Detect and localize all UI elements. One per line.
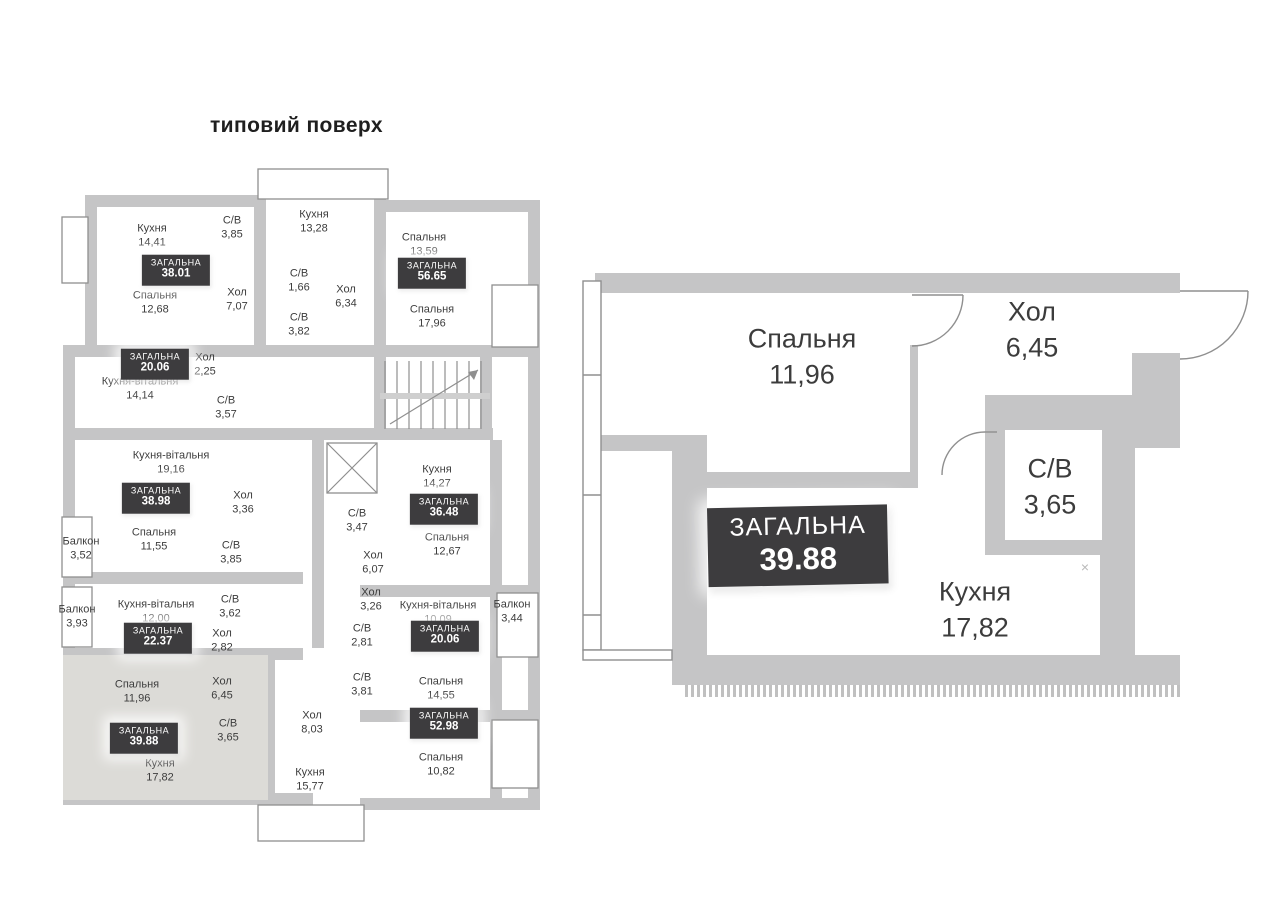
room-area: 2,82	[211, 641, 232, 655]
room-name: Хол	[211, 675, 232, 689]
room-label: Хол 3,36	[232, 489, 253, 518]
room-area: 3,82	[288, 325, 309, 339]
wall	[85, 195, 97, 345]
room-area: 3,52	[63, 549, 100, 563]
balcony-outline	[583, 281, 601, 650]
room-area: 2,25	[194, 365, 215, 379]
room-name: Кухня-вітальня	[400, 599, 477, 613]
room-label: Балкон 3,52	[63, 535, 100, 564]
room-label: Хол 2,25	[194, 351, 215, 380]
room-label: С/В 3,82	[288, 311, 309, 340]
total-badge-value: 38.01	[151, 268, 201, 281]
room-area: 3,65	[1024, 487, 1077, 523]
room-label: Хол 6,45	[211, 675, 232, 704]
room-area: 3,26	[360, 600, 381, 614]
total-badge-value: 38.98	[131, 496, 181, 509]
room-area: 1,66	[288, 281, 309, 295]
wall	[374, 357, 386, 428]
total-badge-label: ЗАГАЛЬНА	[130, 352, 180, 362]
room-name: Спальня	[410, 303, 454, 317]
room-area: 14,55	[419, 689, 463, 703]
total-badge-value: 20.06	[420, 634, 470, 647]
wall	[672, 472, 918, 488]
room-area: 12,68	[133, 303, 177, 317]
room-name: С/В	[351, 622, 372, 636]
room-label: Спальня 14,55	[419, 675, 463, 704]
room-name: Спальня	[425, 531, 469, 545]
room-area: 14,41	[137, 236, 166, 250]
room-area: 11,96	[115, 692, 159, 706]
room-label: С/В 2,81	[351, 622, 372, 651]
room-name: Кухня	[939, 574, 1011, 610]
room-name: Хол	[362, 549, 383, 563]
wall	[1132, 353, 1180, 448]
room-name: Кухня	[145, 757, 174, 771]
total-badge-label: ЗАГАЛЬНА	[151, 258, 201, 268]
room-name: Хол	[232, 489, 253, 503]
total-badge-value: 52.98	[419, 721, 469, 734]
room-label: Кухня 15,77	[295, 766, 324, 795]
room-area: 6,34	[335, 297, 356, 311]
balcony-outline	[258, 169, 388, 199]
wall	[586, 435, 672, 451]
x-marker: ×	[1081, 559, 1089, 575]
room-label: Кухня-вітальня 19,16	[133, 449, 210, 478]
room-name: Балкон	[63, 535, 100, 549]
room-label: Балкон 3,44	[494, 598, 531, 627]
room-label: Спальня 11,55	[132, 526, 176, 555]
wall	[685, 655, 1180, 685]
total-badge-value: 22.37	[133, 636, 183, 649]
room-area: 11,55	[132, 540, 176, 554]
room-area: 3,36	[232, 503, 253, 517]
room-name: С/В	[220, 539, 241, 553]
room-name: Спальня	[419, 675, 463, 689]
room-area: 6,45	[211, 689, 232, 703]
room-name: С/В	[215, 394, 236, 408]
total-badge-label: ЗАГАЛЬНА	[419, 497, 469, 507]
room-name: Хол	[1006, 294, 1059, 330]
room-name: Спальня	[132, 526, 176, 540]
wall	[254, 195, 266, 345]
room-label: Спальня 11,96	[115, 678, 159, 707]
room-name: Балкон	[59, 603, 96, 617]
entry-canopy-outline	[258, 805, 364, 841]
room-name: Кухня	[295, 766, 324, 780]
door-arc	[912, 295, 963, 346]
room-area: 10,82	[419, 765, 463, 779]
total-badge-value: 36.48	[419, 507, 469, 520]
total-badge: ЗАГАЛЬНА 22.37	[124, 623, 192, 654]
room-name: Балкон	[494, 598, 531, 612]
room-label: С/В 3,47	[346, 507, 367, 536]
wall	[910, 345, 918, 480]
room-label: Кухня 13,28	[299, 208, 328, 237]
wall	[85, 195, 262, 207]
room-label: Кухня 14,27	[422, 463, 451, 492]
room-label: Кухня 14,41	[137, 222, 166, 251]
total-badge: ЗАГАЛЬНА 52.98	[410, 708, 478, 739]
elevator-outline	[327, 443, 377, 493]
room-area: 8,03	[301, 723, 322, 737]
total-badge-label: ЗАГАЛЬНА	[133, 626, 183, 636]
total-badge-value: 56.65	[407, 271, 457, 284]
total-badge: ЗАГАЛЬНА 20.06	[121, 349, 189, 380]
room-name: С/В	[288, 267, 309, 281]
room-name: Хол	[211, 627, 232, 641]
room-label: Спальня 12,67	[425, 531, 469, 560]
room-name: Кухня-вітальня	[133, 449, 210, 463]
wall	[360, 798, 540, 810]
room-name: С/В	[221, 214, 242, 228]
room-label: С/В 1,66	[288, 267, 309, 296]
room-area: 3,57	[215, 408, 236, 422]
balcony-outline	[583, 650, 672, 660]
room-area: 3,85	[221, 228, 242, 242]
wall	[380, 200, 540, 212]
room-label: Спальня 13,59	[402, 231, 446, 260]
wall	[528, 200, 540, 350]
room-name: Спальня	[748, 321, 857, 357]
room-area: 3,62	[219, 607, 240, 621]
total-badge: ЗАГАЛЬНА 38.01	[142, 255, 210, 286]
room-name: С/В	[1024, 451, 1077, 487]
room-label: Спальня 11,96	[748, 321, 857, 394]
room-area: 7,07	[226, 300, 247, 314]
room-area: 11,96	[748, 357, 857, 393]
door-arc	[942, 432, 985, 475]
room-area: 2,81	[351, 636, 372, 650]
room-label: Спальня 12,68	[133, 289, 177, 318]
total-badge: ЗАГАЛЬНА 36.48	[410, 494, 478, 525]
room-name: Кухня	[422, 463, 451, 477]
wall	[595, 273, 1180, 293]
room-name: С/В	[351, 671, 372, 685]
total-area-badge: ЗАГАЛЬНА 39.88	[707, 504, 889, 587]
room-label: Хол 2,82	[211, 627, 232, 656]
room-name: С/В	[288, 311, 309, 325]
room-label: Хол 6,07	[362, 549, 383, 578]
total-area-label: ЗАГАЛЬНА	[729, 511, 866, 543]
room-name: Хол	[226, 286, 247, 300]
page-title: типовий поверх	[210, 114, 383, 138]
room-area: 17,96	[410, 317, 454, 331]
room-label: С/В 3,85	[220, 539, 241, 568]
total-badge-label: ЗАГАЛЬНА	[419, 711, 469, 721]
room-area: 17,82	[939, 610, 1011, 646]
room-name: С/В	[219, 593, 240, 607]
room-area: 3,65	[217, 731, 238, 745]
stairs-arrow-line	[390, 370, 478, 424]
wall	[360, 585, 540, 597]
room-name: Хол	[360, 586, 381, 600]
total-badge-value: 39.88	[119, 736, 169, 749]
room-label: Хол 7,07	[226, 286, 247, 315]
room-area: 17,82	[145, 771, 174, 785]
detail-apartment-plan: Спальня 11,96 Хол 6,45 С/В 3,65 Кухня 17…	[580, 265, 1252, 707]
room-name: Хол	[301, 709, 322, 723]
room-area: 3,81	[351, 685, 372, 699]
total-badge-label: ЗАГАЛЬНА	[131, 486, 181, 496]
room-area: 3,93	[59, 617, 96, 631]
room-area: 3,85	[220, 553, 241, 567]
total-badge: ЗАГАЛЬНА 38.98	[122, 483, 190, 514]
wall	[528, 345, 540, 805]
total-area-value: 39.88	[730, 540, 867, 578]
total-badge-value: 20.06	[130, 362, 180, 375]
overview-floor-plan: Кухня 14,41 С/В 3,85 Кухня 13,28 Спальня…	[60, 165, 540, 847]
floor-plan-page: типовий поверх	[0, 0, 1280, 904]
stairs	[385, 361, 481, 429]
wall-hatch	[685, 685, 1180, 697]
room-area: 6,07	[362, 563, 383, 577]
stairs-arrowhead	[468, 370, 478, 380]
room-area: 12,67	[425, 545, 469, 559]
room-label: С/В 3,57	[215, 394, 236, 423]
wall	[480, 357, 492, 440]
room-name: С/В	[217, 717, 238, 731]
room-area: 3,47	[346, 521, 367, 535]
room-label: Балкон 3,93	[59, 603, 96, 632]
wall	[374, 195, 386, 345]
room-label: С/В 3,65	[1024, 451, 1077, 524]
room-area: 6,45	[1006, 330, 1059, 366]
room-name: Спальня	[115, 678, 159, 692]
total-badge: ЗАГАЛЬНА 39.88	[110, 723, 178, 754]
wall	[1100, 555, 1135, 660]
room-area: 15,77	[295, 780, 324, 794]
wall	[312, 440, 324, 648]
room-name: Кухня	[299, 208, 328, 222]
room-label: Хол 3,26	[360, 586, 381, 615]
room-name: Кухня	[137, 222, 166, 236]
elevator-x	[327, 443, 377, 493]
room-area: 19,16	[133, 463, 210, 477]
wall	[63, 428, 493, 440]
room-label: С/В 3,81	[351, 671, 372, 700]
room-label: Спальня 17,96	[410, 303, 454, 332]
room-area: 14,14	[102, 389, 179, 403]
room-name: Спальня	[133, 289, 177, 303]
room-label: С/В 3,62	[219, 593, 240, 622]
total-badge-label: ЗАГАЛЬНА	[407, 261, 457, 271]
room-name: Кухня-вітальня	[118, 598, 195, 612]
room-area: 14,27	[422, 477, 451, 491]
total-badge: ЗАГАЛЬНА 20.06	[411, 621, 479, 652]
total-badge-label: ЗАГАЛЬНА	[420, 624, 470, 634]
room-name: Спальня	[419, 751, 463, 765]
room-label: Хол 6,34	[335, 283, 356, 312]
window-ticks	[583, 375, 601, 615]
room-label: Хол 6,45	[1006, 294, 1059, 367]
room-name: Хол	[335, 283, 356, 297]
room-area: 13,28	[299, 222, 328, 236]
room-name: Хол	[194, 351, 215, 365]
total-badge-label: ЗАГАЛЬНА	[119, 726, 169, 736]
room-label: Кухня 17,82	[145, 757, 174, 786]
room-label: С/В 3,65	[217, 717, 238, 746]
entry-door-arc	[1180, 291, 1248, 359]
wall	[63, 572, 303, 584]
room-label: С/В 3,85	[221, 214, 242, 243]
room-label: Спальня 10,82	[419, 751, 463, 780]
total-badge: ЗАГАЛЬНА 56.65	[398, 258, 466, 289]
room-name: Спальня	[402, 231, 446, 245]
room-label: Кухня 17,82	[939, 574, 1011, 647]
room-name: С/В	[346, 507, 367, 521]
room-label: Хол 8,03	[301, 709, 322, 738]
room-area: 3,44	[494, 612, 531, 626]
